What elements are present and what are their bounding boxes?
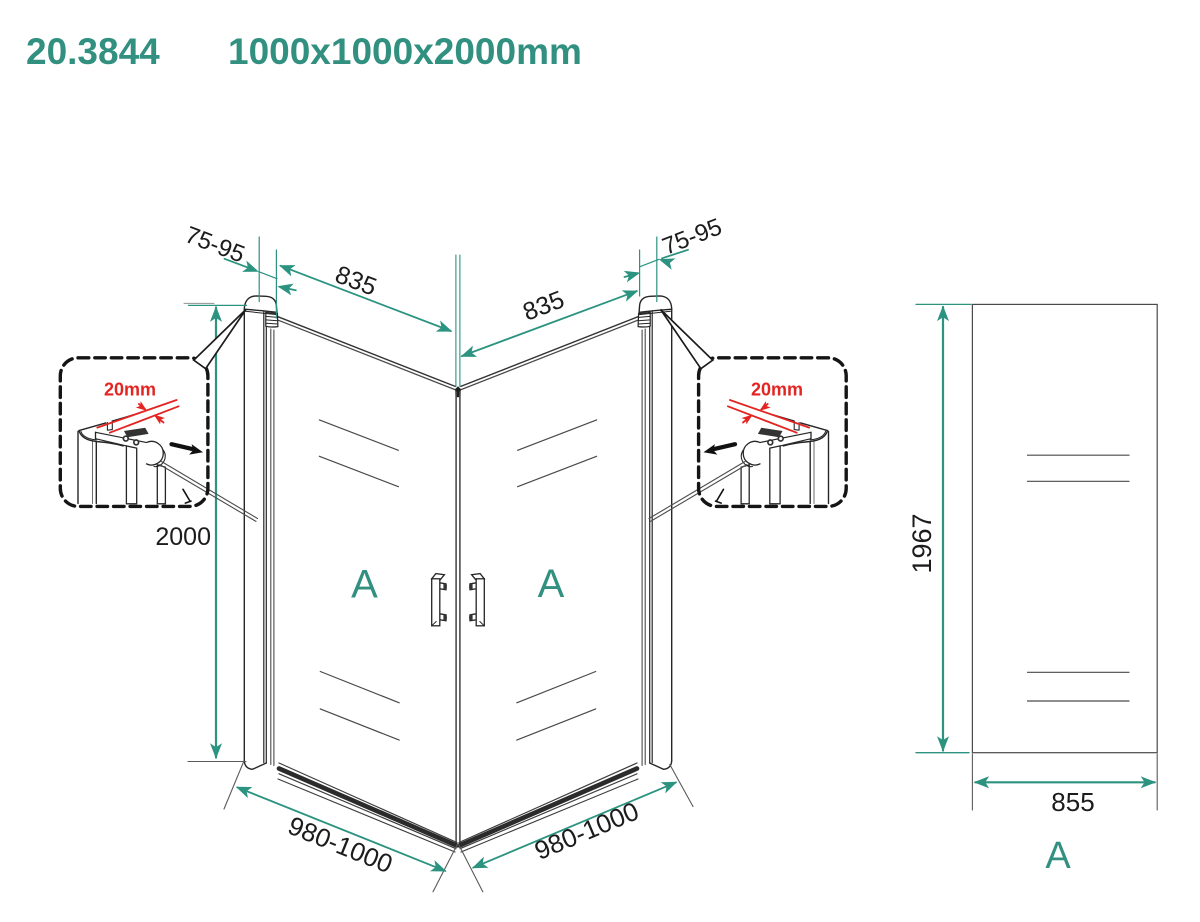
svg-text:20.3844: 20.3844 <box>26 31 160 72</box>
svg-text:2000: 2000 <box>155 523 211 551</box>
svg-text:855: 855 <box>1051 787 1094 817</box>
svg-text:A: A <box>538 562 565 606</box>
svg-text:A: A <box>351 563 378 607</box>
svg-text:20mm: 20mm <box>104 380 156 400</box>
svg-text:A: A <box>1045 835 1071 877</box>
svg-text:1000x1000x2000mm: 1000x1000x2000mm <box>228 31 582 72</box>
svg-text:20mm: 20mm <box>751 380 803 400</box>
svg-text:1967: 1967 <box>907 513 937 573</box>
